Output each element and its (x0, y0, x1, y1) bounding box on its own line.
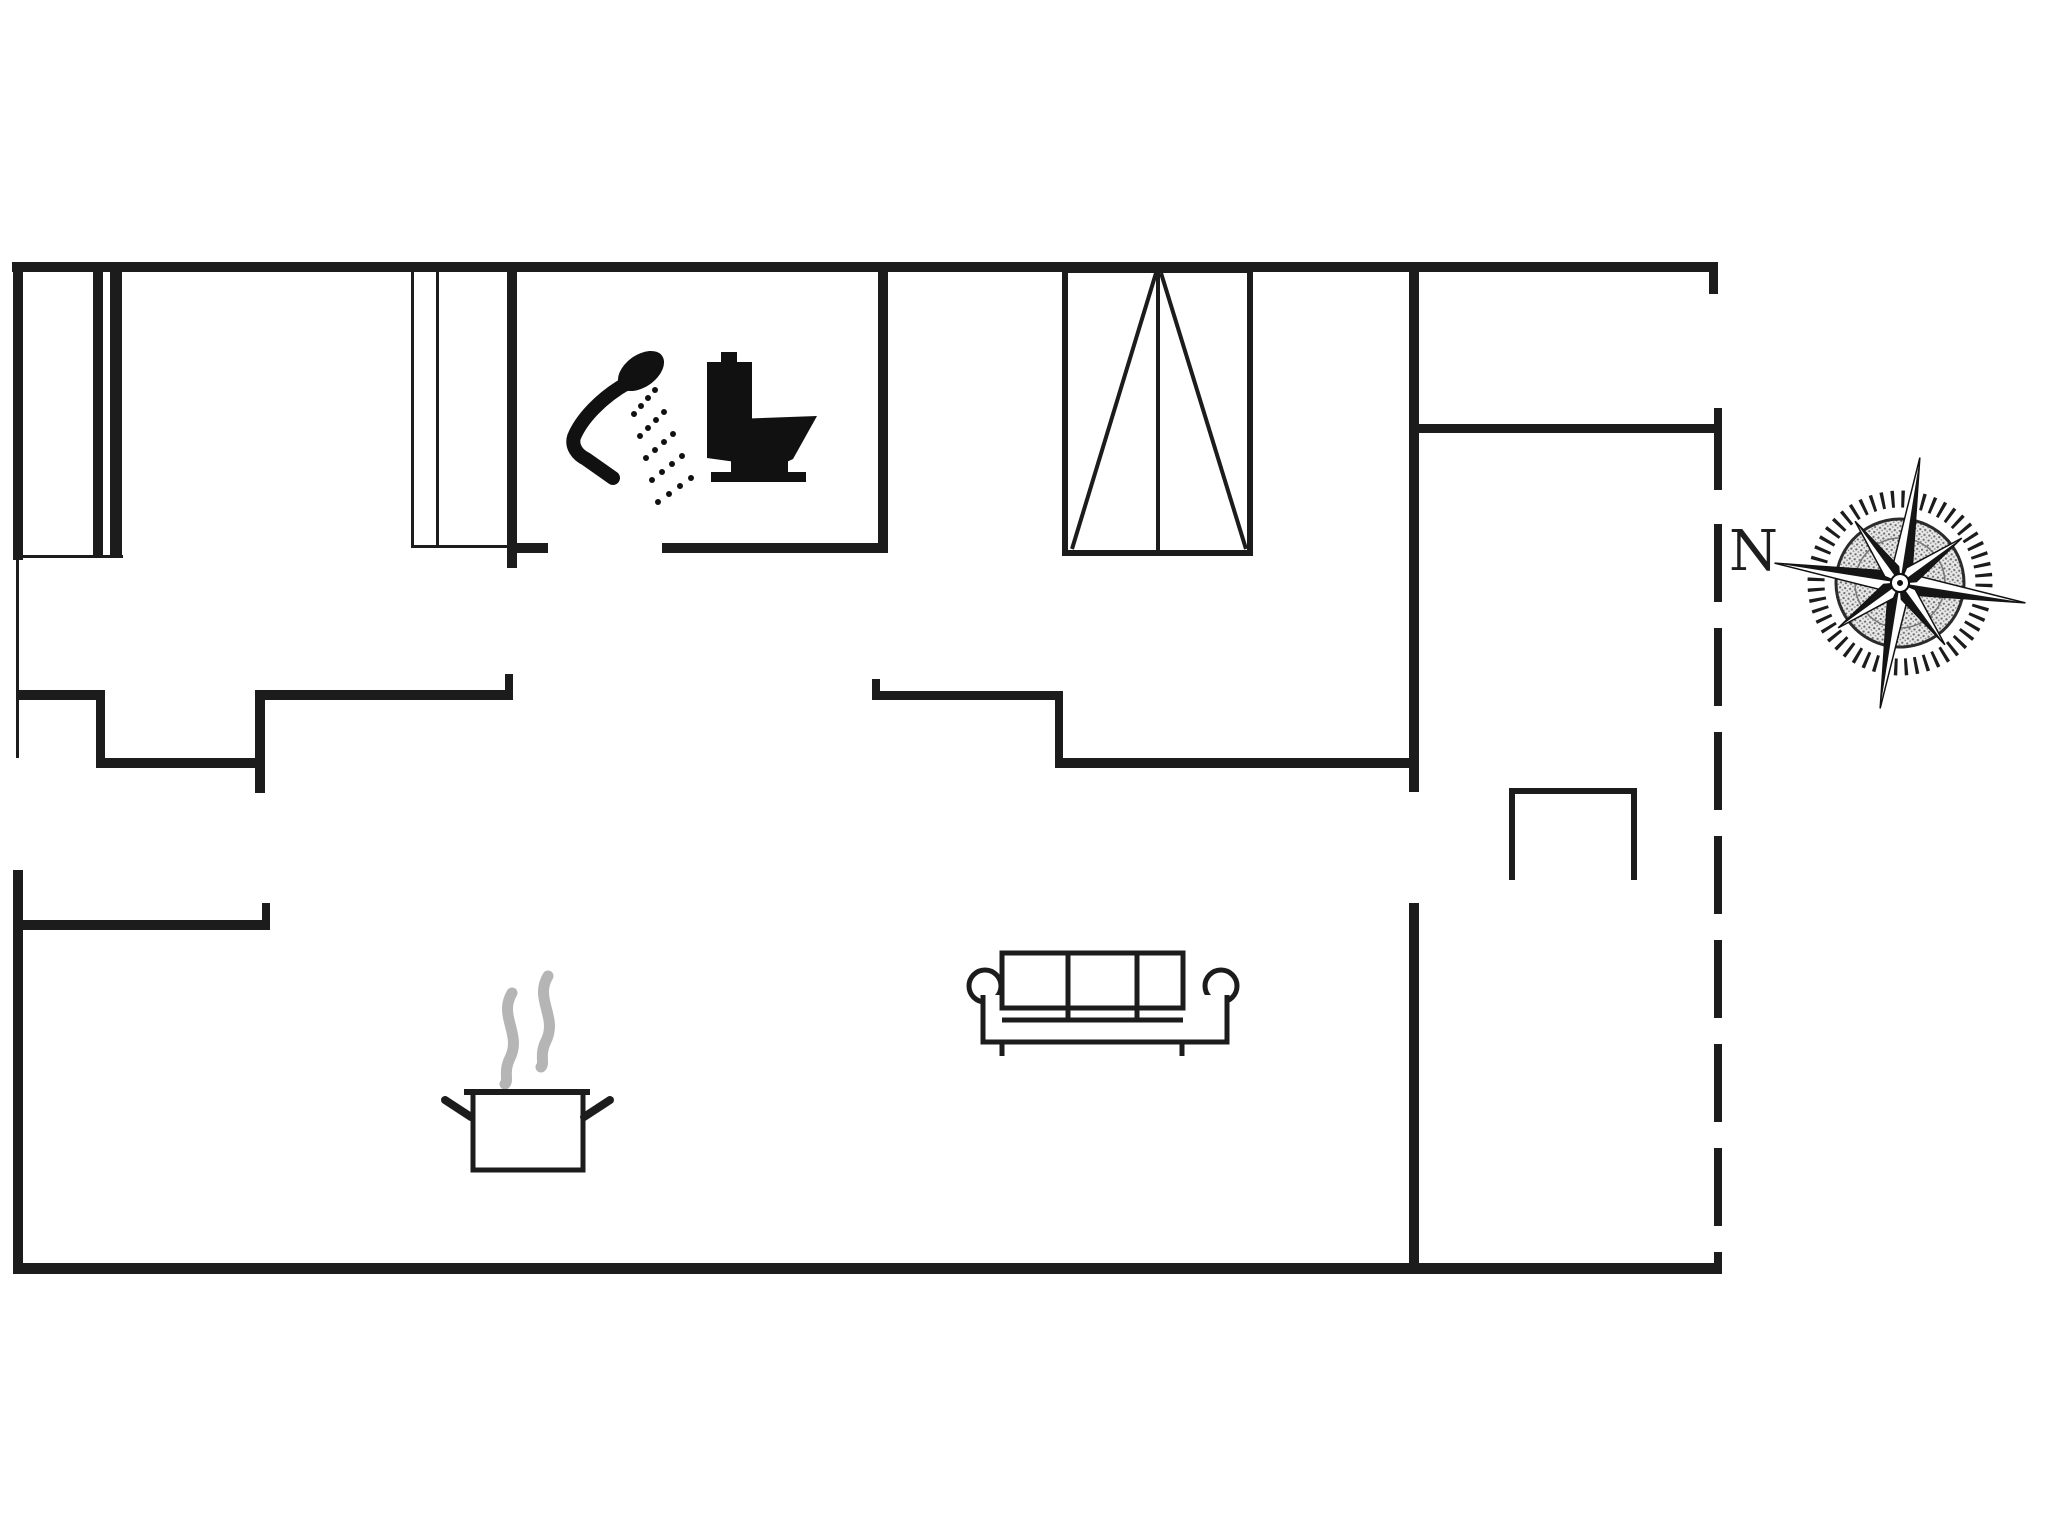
window-west-bar-b (110, 272, 122, 558)
wall-lower-left-tick (262, 903, 270, 930)
wall-left-upper (13, 262, 23, 560)
niche-right (1631, 788, 1637, 880)
niche-top (1509, 788, 1637, 794)
wall-step-vert-1 (96, 690, 105, 767)
steam-left (505, 993, 513, 1084)
window-hall-mid (436, 272, 439, 548)
wall-hall (1055, 758, 1418, 768)
dashed-terrace-boundary (1714, 408, 1722, 1263)
wall-divider-lower (1409, 903, 1419, 1263)
wall-left-thin-segment (16, 558, 19, 758)
shower-spray-dots (631, 387, 694, 505)
wall-living-left (255, 690, 513, 700)
sofa-symbol (969, 953, 1237, 1056)
floor-plan-page: N (0, 0, 2048, 1536)
niche-left (1509, 788, 1515, 880)
wall-step-vert-2 (255, 690, 265, 793)
wall-living-right-tick (872, 679, 880, 700)
wall-bathroom-left (507, 262, 517, 568)
wall-living-right (872, 691, 1063, 700)
wall-divider-upper (1409, 262, 1419, 792)
wall-bottom (13, 1263, 1722, 1274)
window-hall-sill (411, 545, 507, 548)
shower-icon (573, 343, 694, 505)
window-west-bar-a (93, 272, 103, 558)
wall-storage (1414, 424, 1718, 433)
wall-living-left-end-tick (505, 674, 513, 700)
wall-bathroom-bottom (662, 543, 886, 553)
wall-bathroom-right (878, 262, 888, 553)
wall-left-lower (13, 870, 23, 1274)
walls (12, 262, 1722, 1274)
window-west-sill (16, 555, 123, 558)
compass-rose-icon (1755, 438, 2046, 729)
wall-step-b (96, 758, 256, 768)
wardrobe-symbol (1065, 270, 1250, 553)
sofa-backrest (1002, 953, 1183, 1008)
wall-bathroom-door-stub (517, 543, 548, 553)
steam-right (541, 976, 549, 1067)
window-hall-left (411, 272, 414, 548)
north-label: N (1729, 519, 1778, 584)
wall-step-a (18, 690, 105, 700)
floor-plan-drawing: N (0, 0, 2048, 1536)
toilet-icon (707, 352, 817, 482)
wall-top-end-cap (1709, 262, 1718, 294)
wall-hall-connector (1055, 691, 1063, 763)
wall-top (12, 262, 1718, 272)
wall-lower-left (18, 920, 270, 930)
cooking-pot-icon (445, 976, 610, 1170)
